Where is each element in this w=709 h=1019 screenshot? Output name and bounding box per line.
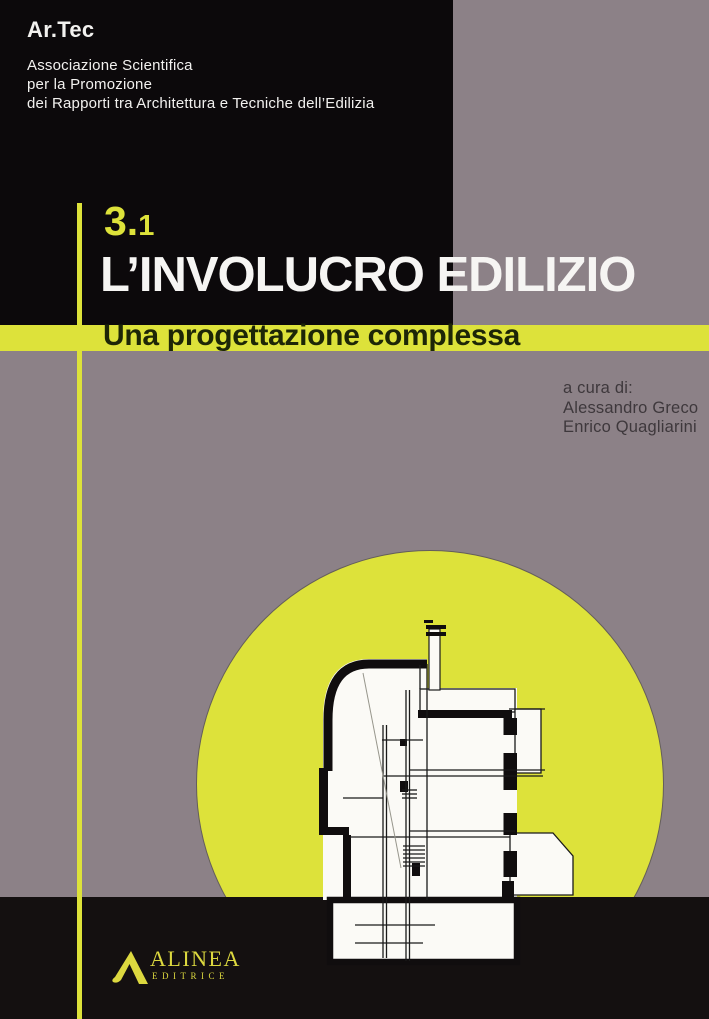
book-title: L’INVOLUCRO EDILIZIO <box>100 247 635 303</box>
chapter-number: 3.1 <box>104 201 154 242</box>
association-line: per la Promozione <box>27 75 374 94</box>
editor-name: Alessandro Greco <box>563 399 698 419</box>
vertical-accent-line <box>77 203 82 1019</box>
publisher-name: ALINEA <box>150 948 241 970</box>
chapter-number-major: 3. <box>104 198 138 244</box>
association-name: Ar.Tec <box>27 17 374 43</box>
association-line: Associazione Scientifica <box>27 56 374 75</box>
publisher-logo: ALINEA EDITRICE <box>112 948 241 984</box>
alinea-triangle-icon <box>112 951 148 984</box>
editor-name: Enrico Quagliarini <box>563 418 698 438</box>
publisher-subname: EDITRICE <box>152 971 241 981</box>
association-block: Ar.Tec Associazione Scientifica per la P… <box>27 17 374 113</box>
subtitle-band: Una progettazione complessa <box>0 325 709 351</box>
chapter-number-minor: 1 <box>138 210 154 242</box>
book-subtitle: Una progettazione complessa <box>103 319 520 353</box>
editors-label: a cura di: <box>563 379 698 399</box>
book-cover: Ar.Tec Associazione Scientifica per la P… <box>0 0 709 1019</box>
editors-block: a cura di: Alessandro Greco Enrico Quagl… <box>563 379 698 438</box>
building-section-drawing <box>305 613 590 1008</box>
association-line: dei Rapporti tra Architettura e Tecniche… <box>27 94 374 113</box>
